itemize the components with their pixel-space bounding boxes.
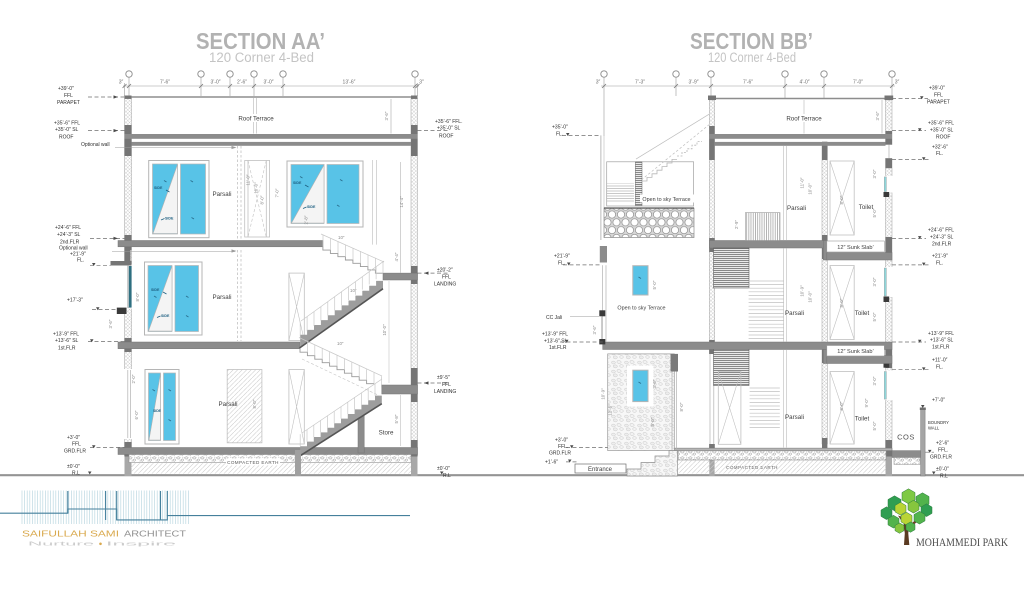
svg-text:8’-0″: 8’-0″ xyxy=(252,399,257,408)
svg-text:WALL: WALL xyxy=(928,426,940,431)
svg-text:+35’-0″ SL: +35’-0″ SL xyxy=(55,127,79,133)
svg-text:+35’-0″ SL: +35’-0″ SL xyxy=(437,126,461,132)
svg-text:SIDE: SIDE xyxy=(161,314,170,318)
svg-text:3’-0″: 3’-0″ xyxy=(872,376,877,385)
svg-text:+3’-0″: +3’-0″ xyxy=(555,438,568,444)
svg-text:1st.FLR: 1st.FLR xyxy=(58,346,76,352)
svg-text:3’-6″: 3’-6″ xyxy=(384,111,389,120)
svg-text:+21’-9″: +21’-9″ xyxy=(932,254,948,260)
svg-text:7’-0″: 7’-0″ xyxy=(853,80,863,86)
svg-text:±20’-2″: ±20’-2″ xyxy=(437,268,453,274)
svg-text:3’-0″: 3’-0″ xyxy=(872,169,877,178)
svg-text:+13’-6″ SL: +13’-6″ SL xyxy=(55,338,79,344)
svg-text:3″: 3″ xyxy=(119,80,124,86)
svg-text:2’-6″: 2’-6″ xyxy=(237,80,247,86)
svg-text:3’-6″: 3’-6″ xyxy=(108,319,113,328)
svg-text:8’-0″: 8’-0″ xyxy=(135,292,140,301)
svg-text:CC Jali: CC Jali xyxy=(546,315,562,321)
svg-text:120 Corner 4-Bed: 120 Corner 4-Bed xyxy=(209,50,314,65)
svg-text:+3’-0″: +3’-0″ xyxy=(67,435,80,441)
svg-text:FFL: FFL xyxy=(442,382,451,388)
svg-text:Toilet: Toilet xyxy=(855,416,870,423)
svg-text:11’-0″: 11’-0″ xyxy=(246,174,251,185)
svg-text:+24’-3″ SL: +24’-3″ SL xyxy=(930,234,954,240)
svg-text:+1’-6″: +1’-6″ xyxy=(545,460,558,466)
svg-text:±0’-0″: ±0’-0″ xyxy=(936,467,949,473)
svg-text:7’-6″: 7’-6″ xyxy=(743,80,753,86)
svg-text:2’-0″: 2’-0″ xyxy=(131,374,136,383)
svg-text:Open to sky Terrace: Open to sky Terrace xyxy=(642,197,690,203)
svg-text:9’-0″: 9’-0″ xyxy=(864,398,869,407)
svg-text:10’-9″: 10’-9″ xyxy=(601,388,606,400)
svg-text:GRD.FLR: GRD.FLR xyxy=(549,451,571,457)
svg-text:+21’-9″: +21’-9″ xyxy=(554,254,570,260)
svg-text:5’-8″: 5’-8″ xyxy=(394,414,399,423)
svg-text:3″: 3″ xyxy=(419,80,424,86)
svg-text:Roof Terrace: Roof Terrace xyxy=(238,116,274,123)
svg-text:+24’-6″ FFL: +24’-6″ FFL xyxy=(928,228,954,234)
svg-text:5’-0″: 5’-0″ xyxy=(652,280,657,289)
svg-text:FL.: FL. xyxy=(77,258,84,264)
svg-text:5’-0″: 5’-0″ xyxy=(650,417,655,426)
svg-text:1st.FLR: 1st.FLR xyxy=(932,345,950,351)
svg-text:10″: 10″ xyxy=(350,288,357,293)
svg-text:+17’-3″: +17’-3″ xyxy=(67,298,83,304)
svg-text:7’-6″: 7’-6″ xyxy=(160,80,170,86)
svg-text:+24’-6″ FFL: +24’-6″ FFL xyxy=(55,225,81,231)
svg-text:Optional wall: Optional wall xyxy=(81,142,110,148)
svg-text:GRD.FLR: GRD.FLR xyxy=(930,454,952,460)
svg-text:10″: 10″ xyxy=(337,341,344,346)
svg-text:R.L: R.L xyxy=(940,474,948,480)
svg-text:2’-8″: 2’-8″ xyxy=(304,215,309,224)
svg-text:3’-6″: 3’-6″ xyxy=(592,325,597,334)
svg-text:12″ Sunk Slab’: 12″ Sunk Slab’ xyxy=(837,349,874,355)
svg-text:+39’-0″: +39’-0″ xyxy=(929,86,945,92)
svg-text:11’-0″: 11’-0″ xyxy=(800,177,805,188)
svg-text:4’-0″: 4’-0″ xyxy=(799,80,809,86)
svg-text:8’-0″: 8’-0″ xyxy=(839,195,844,204)
svg-text:PARAPET: PARAPET xyxy=(927,99,950,105)
svg-text:3’-0″: 3’-0″ xyxy=(872,277,877,286)
svg-text:FL.: FL. xyxy=(936,261,943,267)
svg-text:+35’-6″ FFL: +35’-6″ FFL xyxy=(928,121,954,127)
svg-text:SIDE: SIDE xyxy=(165,217,174,221)
svg-text:+39’-0″: +39’-0″ xyxy=(58,86,74,92)
svg-text:10’-0″: 10’-0″ xyxy=(382,324,387,336)
svg-text:COMPACTED EARTH: COMPACTED EARTH xyxy=(227,460,279,465)
svg-text:LANDING: LANDING xyxy=(434,389,456,395)
svg-text:10’-9″: 10’-9″ xyxy=(800,285,805,297)
svg-text:FL.: FL. xyxy=(556,132,563,138)
svg-text:FFL: FFL xyxy=(72,442,81,448)
svg-text:Roof Terrace: Roof Terrace xyxy=(786,116,822,123)
svg-text:13’-6″: 13’-6″ xyxy=(343,80,356,86)
svg-text:4’-4″: 4’-4″ xyxy=(394,252,399,261)
svg-text:8’-0″: 8’-0″ xyxy=(839,401,844,410)
svg-text:SIDE: SIDE xyxy=(153,409,162,413)
svg-text:SIDE: SIDE xyxy=(154,186,163,190)
svg-text:Open to sky Terrace: Open to sky Terrace xyxy=(617,305,665,311)
svg-text:+35’-0″: +35’-0″ xyxy=(552,125,568,131)
svg-text:+2’-6″: +2’-6″ xyxy=(936,441,949,447)
svg-text:6’-0″: 6’-0″ xyxy=(134,410,139,419)
svg-text:10’-0″: 10’-0″ xyxy=(808,183,813,195)
svg-text:10’-0″: 10’-0″ xyxy=(808,291,813,303)
svg-text:±0’-0″: ±0’-0″ xyxy=(437,466,450,472)
svg-text:5’-0″: 5’-0″ xyxy=(872,208,877,217)
svg-text:Nurture: Nurture xyxy=(28,542,94,548)
svg-text:FFL: FFL xyxy=(64,93,73,99)
svg-text:Parsali: Parsali xyxy=(785,310,804,317)
svg-text:+35’-0″ SL: +35’-0″ SL xyxy=(930,127,954,133)
svg-text:FFL: FFL xyxy=(934,92,943,98)
svg-text:Entrance: Entrance xyxy=(588,467,613,473)
svg-text:Parsali: Parsali xyxy=(213,294,232,301)
svg-text:8’-0″: 8’-0″ xyxy=(839,298,844,307)
svg-text:7’-0″: 7’-0″ xyxy=(275,188,280,197)
svg-text:10’-0″: 10’-0″ xyxy=(254,182,259,194)
svg-text:12’-6″: 12’-6″ xyxy=(608,404,613,416)
svg-text:3″: 3″ xyxy=(596,80,601,86)
svg-text:8’-0″: 8’-0″ xyxy=(679,402,684,411)
svg-text:1st.FLR: 1st.FLR xyxy=(549,345,567,351)
svg-text:3″: 3″ xyxy=(895,80,900,86)
svg-text:SIDE: SIDE xyxy=(151,288,160,292)
svg-text:3’-0″: 3’-0″ xyxy=(263,80,273,86)
svg-text:Toilet: Toilet xyxy=(855,310,870,317)
svg-text:2’-9″: 2’-9″ xyxy=(734,220,739,229)
svg-text:SAIFULLAH SAMI: SAIFULLAH SAMI xyxy=(22,530,119,539)
svg-text:MOHAMMEDI PARK: MOHAMMEDI PARK xyxy=(916,537,1009,549)
svg-text:Inspire: Inspire xyxy=(106,542,176,548)
svg-text:FFL.: FFL. xyxy=(558,444,568,450)
svg-text:+13’-9″ FFL: +13’-9″ FFL xyxy=(542,332,568,338)
svg-text:FFL.: FFL. xyxy=(938,447,948,453)
svg-text:Parsali: Parsali xyxy=(787,205,806,212)
svg-text:3’-0″: 3’-0″ xyxy=(210,80,220,86)
svg-text:FL.: FL. xyxy=(936,151,943,157)
svg-text:+35’-6″ FFL.: +35’-6″ FFL. xyxy=(435,119,462,125)
svg-text:±0’-0″: ±0’-0″ xyxy=(67,464,80,470)
svg-text:Parsali: Parsali xyxy=(219,401,238,408)
svg-text:+35’-6″ FFL: +35’-6″ FFL xyxy=(54,121,80,127)
svg-text:+11’-0″: +11’-0″ xyxy=(932,358,948,364)
svg-text:12″ Sunk Slab’: 12″ Sunk Slab’ xyxy=(837,245,874,251)
svg-text:+32’-6″: +32’-6″ xyxy=(932,144,948,150)
svg-text:8’-0″: 8’-0″ xyxy=(260,195,265,204)
svg-text:5’-0″: 5’-0″ xyxy=(872,312,877,321)
svg-text:ROOF: ROOF xyxy=(59,135,73,141)
svg-text:ROOF: ROOF xyxy=(936,134,950,140)
svg-text:Parsali: Parsali xyxy=(213,191,232,198)
svg-text:SIDE: SIDE xyxy=(307,205,316,209)
svg-text:PARAPET: PARAPET xyxy=(57,100,80,106)
svg-text:3’-6″: 3’-6″ xyxy=(875,111,880,120)
svg-text:+13’-6″ SL: +13’-6″ SL xyxy=(544,338,568,344)
svg-text:3’-6″: 3’-6″ xyxy=(652,379,657,388)
svg-text:COS: COS xyxy=(897,433,915,442)
svg-text:FL.: FL. xyxy=(558,261,565,267)
svg-text:+7’-0″: +7’-0″ xyxy=(932,398,945,404)
svg-text:Store: Store xyxy=(379,430,394,437)
svg-text:ARCHITECT: ARCHITECT xyxy=(124,530,186,539)
svg-text:LANDING: LANDING xyxy=(434,282,456,288)
svg-text:±9’-5″: ±9’-5″ xyxy=(437,375,450,381)
svg-text:+24’-3″ SL: +24’-3″ SL xyxy=(57,232,81,238)
svg-text:+13’-9″ FFL: +13’-9″ FFL xyxy=(53,332,79,338)
svg-text:+13’-9″ FFL: +13’-9″ FFL xyxy=(928,331,954,337)
svg-text:FFL: FFL xyxy=(442,275,451,281)
svg-text:2nd.FLR: 2nd.FLR xyxy=(932,241,952,247)
svg-text:FL.: FL. xyxy=(936,365,943,371)
svg-text:SIDE: SIDE xyxy=(293,181,302,185)
svg-text:BOUNDRY: BOUNDRY xyxy=(928,420,949,425)
svg-text:Parsali: Parsali xyxy=(785,414,804,421)
svg-text:GRD.FLR: GRD.FLR xyxy=(64,448,86,454)
svg-text:ROOF: ROOF xyxy=(439,134,453,140)
svg-text:7’-3″: 7’-3″ xyxy=(635,80,645,86)
svg-text:5’-0″: 5’-0″ xyxy=(872,421,877,430)
svg-text:+13’-6″ SL: +13’-6″ SL xyxy=(930,338,954,344)
svg-text:14’-4″: 14’-4″ xyxy=(399,196,404,208)
svg-text:120 Corner 4-Bed: 120 Corner 4-Bed xyxy=(708,50,796,65)
svg-text:3’-9″: 3’-9″ xyxy=(688,80,698,86)
svg-text:10″: 10″ xyxy=(338,235,345,240)
svg-text:R.L: R.L xyxy=(443,473,451,479)
svg-text:R.L: R.L xyxy=(72,471,80,477)
